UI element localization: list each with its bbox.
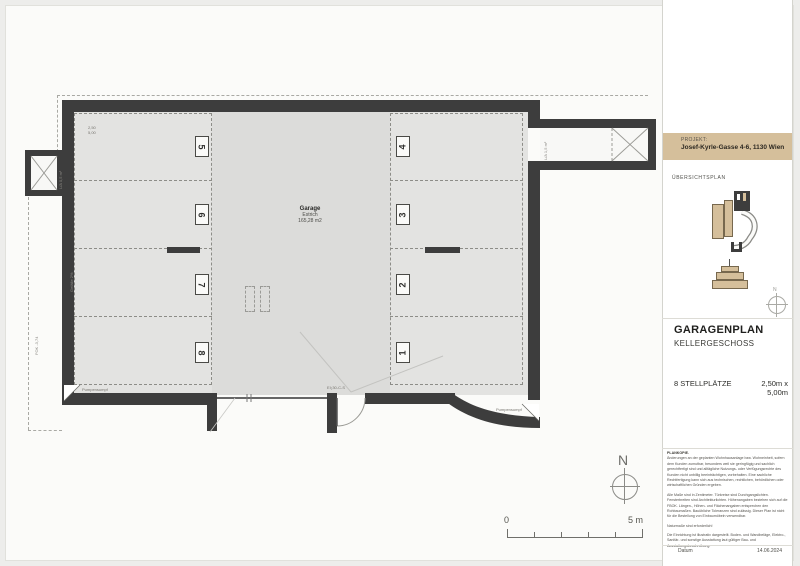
corridor-wall-bottom bbox=[540, 161, 656, 170]
stall-plate-5: 5 bbox=[195, 136, 209, 157]
annotation-slope: Gefälle 2% bbox=[69, 272, 74, 292]
column-stub-left bbox=[167, 247, 200, 253]
column-stub-right bbox=[425, 247, 460, 253]
sump-label-right: Pumpensumpf bbox=[496, 408, 518, 413]
building-outline-dashed-top bbox=[57, 95, 648, 96]
corridor-wall-top bbox=[540, 119, 656, 128]
overview-building-a bbox=[712, 204, 724, 239]
scale-tick bbox=[588, 532, 589, 538]
overview-site-plan bbox=[698, 188, 762, 254]
wall-top bbox=[62, 100, 540, 112]
panel-compass-hline bbox=[766, 304, 788, 305]
notes-paragraph-2: Alle Maße sind in Zentimeter. Türkreise … bbox=[667, 493, 789, 520]
floor-element-left bbox=[245, 286, 255, 312]
corridor-floor bbox=[540, 128, 648, 161]
sump-label-left: Pumpensumpf bbox=[82, 388, 104, 393]
elevation-base bbox=[712, 280, 748, 289]
building-outline-dashed-left-upper bbox=[57, 95, 58, 152]
gate-pier-left bbox=[207, 393, 217, 431]
stall-plate-7: 7 bbox=[195, 274, 209, 295]
stall-plate-3: 3 bbox=[396, 204, 410, 225]
overview-plan-label: ÜBERSICHTSPLAN bbox=[672, 175, 726, 181]
panel-divider bbox=[662, 448, 793, 449]
scale-tick bbox=[642, 529, 643, 538]
stall-divider-right-1 bbox=[390, 180, 523, 181]
panel-compass-circle bbox=[768, 296, 786, 314]
overview-elevation bbox=[706, 258, 754, 292]
wall-bottom-left bbox=[62, 393, 207, 405]
stall-divider-left-3 bbox=[74, 316, 212, 317]
scale-bar-line bbox=[507, 537, 643, 538]
project-address: Josef-Kyrle-Gasse 4-6, 1130 Wien bbox=[681, 144, 792, 151]
annotation-level: FOK -3,74 bbox=[34, 337, 39, 355]
stall-number: 2 bbox=[398, 282, 408, 287]
plan-title: GARAGENPLAN bbox=[674, 324, 763, 336]
north-letter: N bbox=[618, 452, 628, 468]
plan-sheet-page: { "panel": { "project": { "label": "PROJ… bbox=[0, 0, 800, 566]
overview-entry-u bbox=[731, 242, 742, 252]
project-label: PROJEKT: bbox=[681, 137, 792, 143]
stall-size: 2,50m x 5,00m bbox=[740, 379, 788, 397]
corridor-wall-end bbox=[648, 119, 656, 170]
date-value: 14.06.2024 bbox=[740, 548, 782, 554]
scale-tick bbox=[561, 532, 562, 538]
stall-number: 3 bbox=[398, 212, 408, 217]
plan-subtitle: KELLERGESCHOSS bbox=[674, 339, 754, 348]
room-area: 165,28 m2 bbox=[280, 218, 340, 224]
scale-label-start: 0 bbox=[504, 515, 509, 525]
wall-right-upper bbox=[528, 100, 540, 128]
stall-number: 8 bbox=[197, 350, 207, 355]
overview-building-c bbox=[734, 191, 750, 211]
wall-right-lower bbox=[528, 161, 540, 400]
stall-number: 7 bbox=[197, 282, 207, 287]
notes-paragraph-3: Naturmaße sind erforderlich! bbox=[667, 524, 789, 529]
plan-notes: PLANKOPIE. Änderungen an der geplanten W… bbox=[667, 451, 789, 553]
stall-divider-right-3 bbox=[390, 316, 523, 317]
stall-divider-left-1 bbox=[74, 180, 212, 181]
panel-compass-vline bbox=[776, 293, 777, 317]
stall-dim-depth: 5,00 bbox=[88, 131, 96, 136]
project-box: PROJEKT: Josef-Kyrle-Gasse 4-6, 1130 Wie… bbox=[663, 133, 792, 160]
stall-plate-4: 4 bbox=[396, 136, 410, 157]
annotation-shaft-left: L/A 0,5 m² bbox=[58, 171, 63, 189]
annotation-shaft-right: L/A 1,5 m² bbox=[543, 142, 548, 160]
door-rating-label: EI₂30-C-S bbox=[327, 386, 345, 391]
elevation-mid bbox=[716, 272, 744, 280]
scale-tick bbox=[615, 532, 616, 538]
panel-divider bbox=[662, 545, 793, 546]
scale-tick bbox=[534, 532, 535, 538]
wall-left bbox=[62, 100, 74, 400]
garage-gate-line bbox=[217, 397, 327, 399]
building-outline-dashed-bottom-left bbox=[28, 430, 62, 431]
stall-plate-8: 8 bbox=[195, 342, 209, 363]
wall-bottom-right bbox=[365, 393, 455, 404]
shaft-left-interior bbox=[31, 156, 57, 190]
room-label: Garage Estrich 165,28 m2 bbox=[280, 206, 340, 224]
gate-pier-right bbox=[327, 393, 337, 433]
overview-building-b bbox=[724, 200, 733, 237]
stall-plate-6: 6 bbox=[195, 204, 209, 225]
panel-divider bbox=[662, 318, 793, 319]
notes-paragraph-1: Änderungen an der geplanten Wohnhausanla… bbox=[667, 456, 789, 488]
stall-number: 5 bbox=[197, 144, 207, 149]
stall-count: 8 STELLPLÄTZE bbox=[674, 379, 732, 388]
driving-aisle bbox=[212, 112, 390, 395]
floor-element-right bbox=[260, 286, 270, 312]
north-compass-circle bbox=[612, 474, 638, 500]
scale-tick bbox=[507, 529, 508, 538]
scale-label-end: 5 m bbox=[628, 515, 643, 525]
stall-number: 4 bbox=[398, 144, 408, 149]
stall-plate-2: 2 bbox=[396, 274, 410, 295]
date-label: Datum bbox=[678, 548, 693, 554]
stall-plate-1: 1 bbox=[396, 342, 410, 363]
stall-number: 6 bbox=[197, 212, 207, 217]
notes-paragraph-4: Die Einrichtung ist illustrativ dargeste… bbox=[667, 533, 789, 549]
north-compass-hline bbox=[610, 486, 640, 487]
stall-number: 1 bbox=[398, 350, 408, 355]
